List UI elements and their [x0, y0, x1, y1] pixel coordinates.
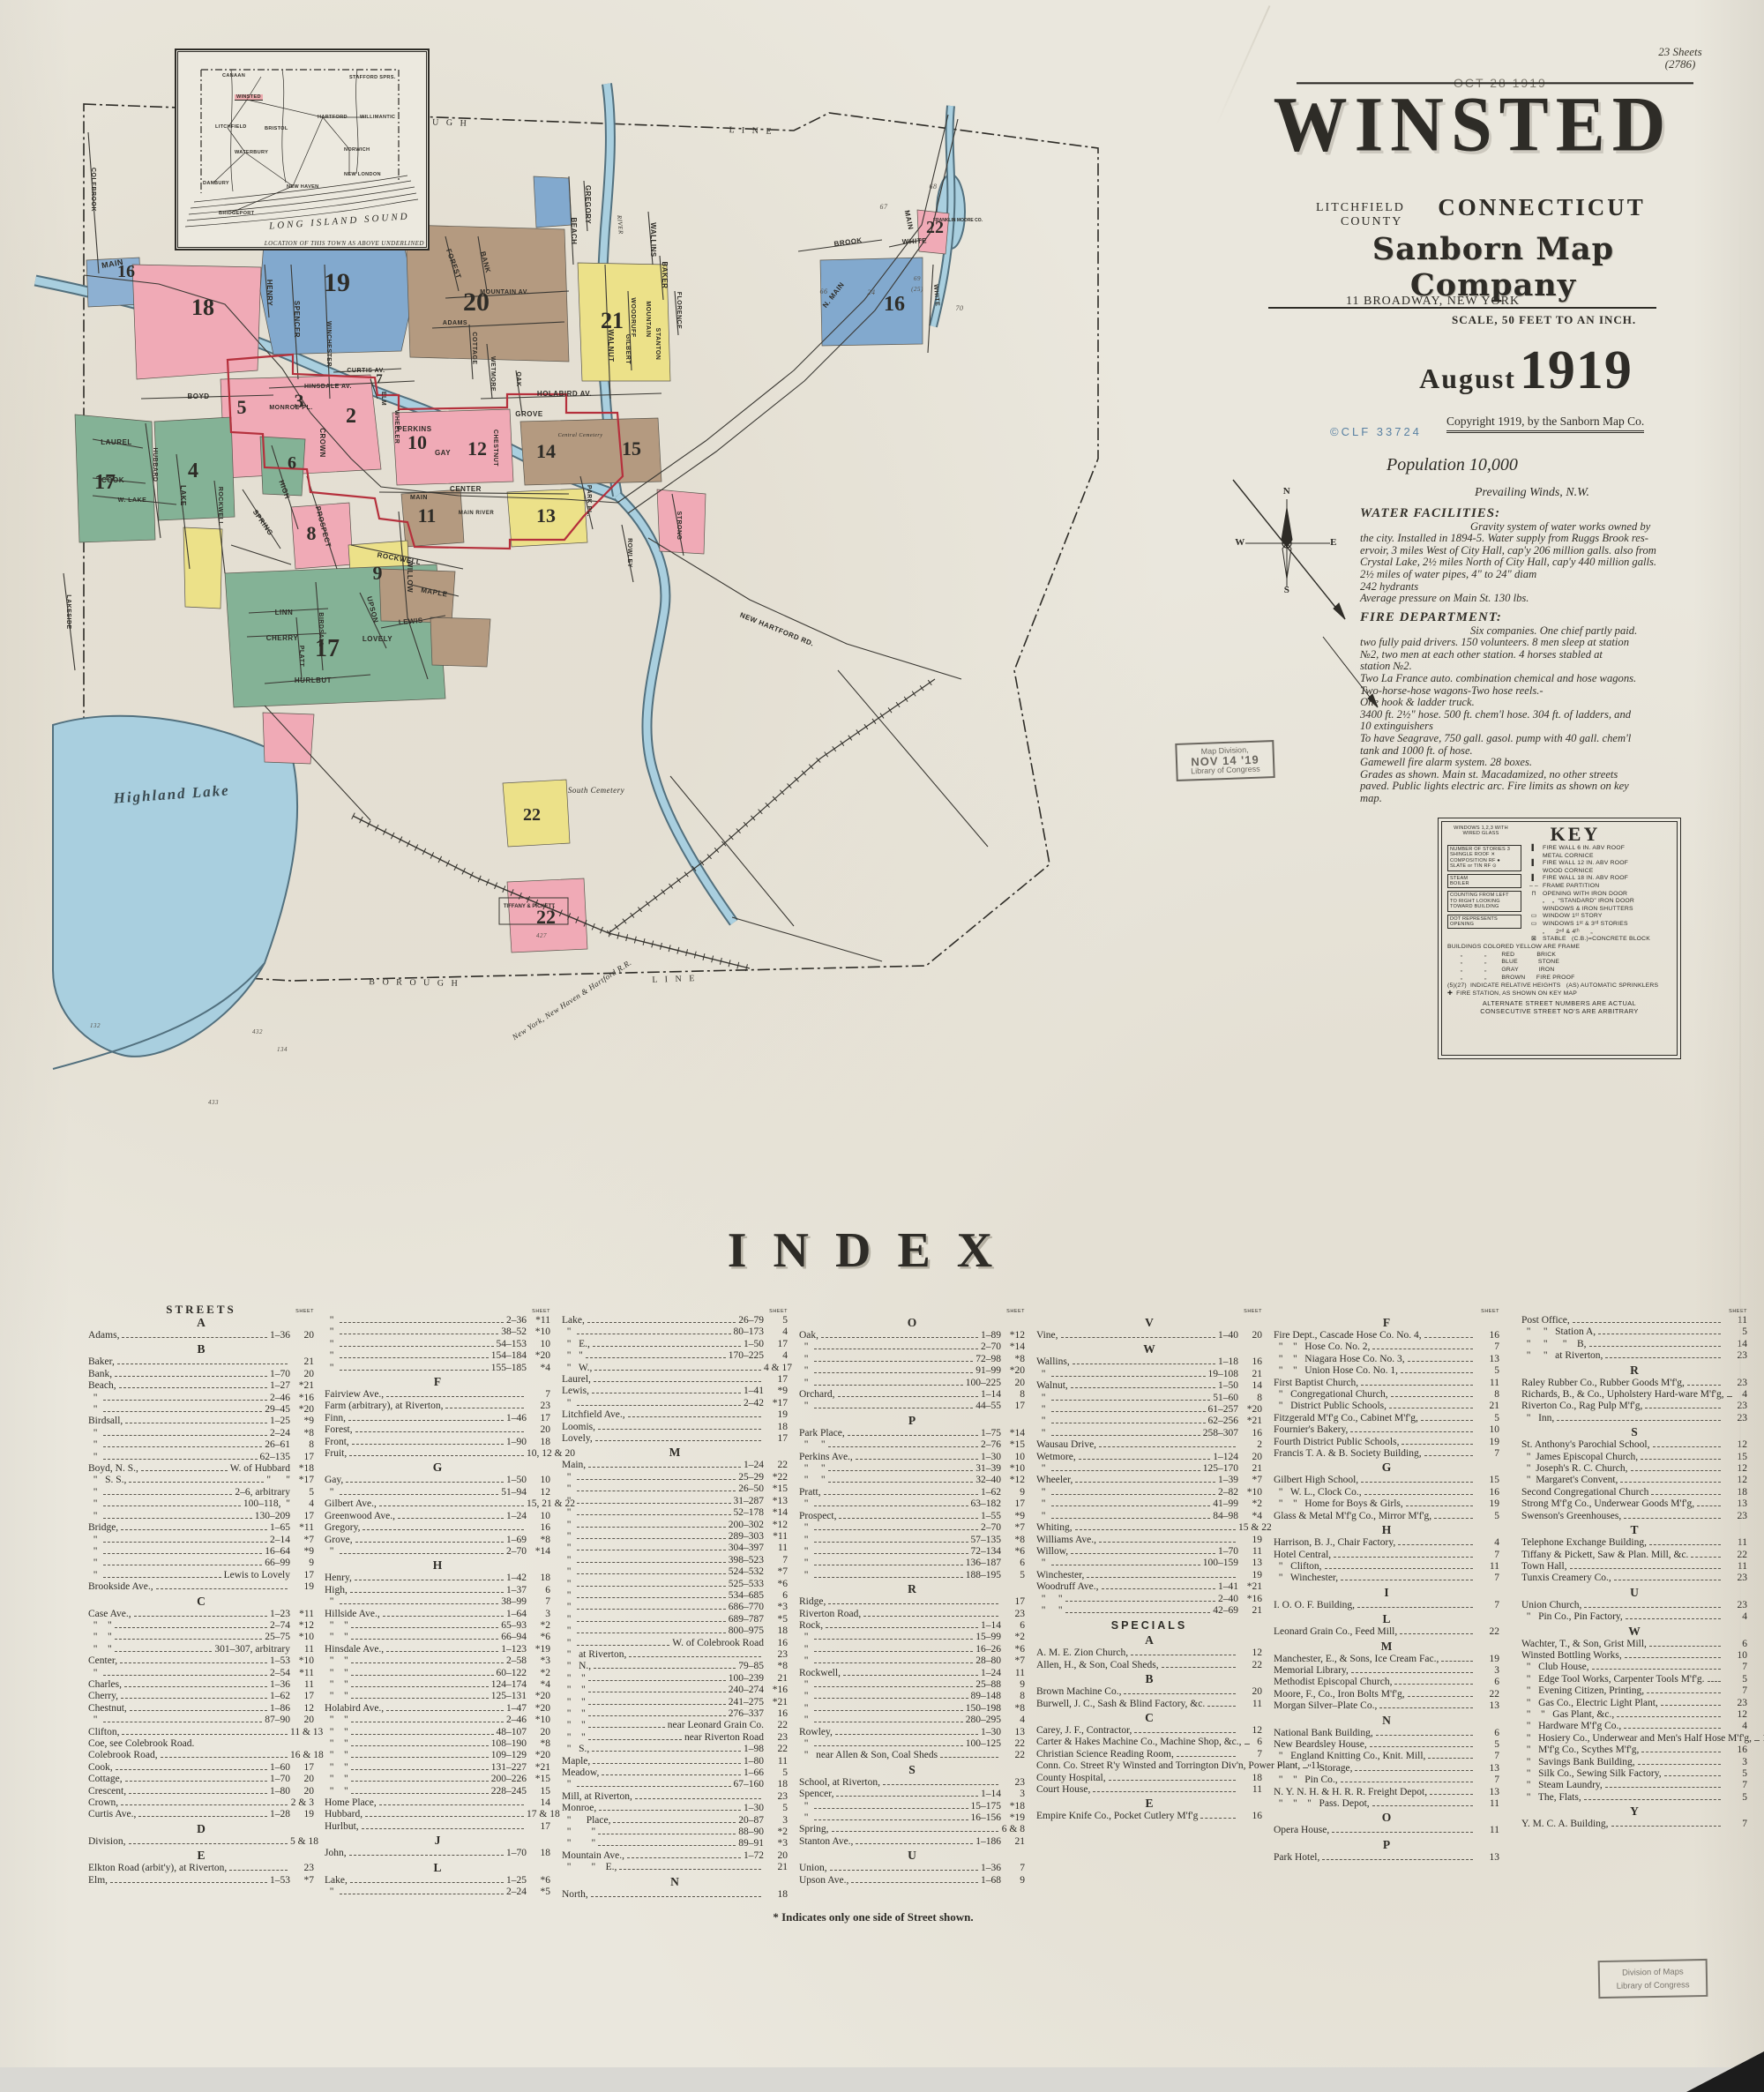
- index-entry: " "240–274*16: [562, 1685, 788, 1696]
- index-entry: Mountain Ave.,1–7220: [562, 1850, 788, 1862]
- index-entry: "89–1488: [799, 1691, 1025, 1702]
- index-entry: " "2–40*16: [1036, 1594, 1262, 1605]
- map-label: S: [1284, 585, 1290, 595]
- index-entry: Fitzgerald M'f'g Co., Cabinet M'f'g,5: [1274, 1413, 1499, 1424]
- district-number: 14: [536, 440, 556, 462]
- index-entry: "2–24*8: [88, 1428, 314, 1439]
- map-label: 132: [90, 1022, 101, 1029]
- index-entry: "84–98*4: [1036, 1511, 1262, 1522]
- district-number: 21: [601, 308, 624, 333]
- index-letter: R: [799, 1582, 1025, 1595]
- index-entry: Rowley,1–3013: [799, 1727, 1025, 1738]
- index-entry: Colebrook Road,16 & 18: [88, 1750, 314, 1761]
- index-letter: J: [325, 1834, 550, 1847]
- index-entry: " "124–174*4: [325, 1679, 550, 1691]
- index-entry: Upson Ave.,1–689: [799, 1875, 1025, 1887]
- index-entry: " Congregational Church,8: [1274, 1389, 1499, 1401]
- index-entry: Carey, J. F., Contractor,12: [1036, 1725, 1262, 1737]
- index-entry: Adams,1–3620: [88, 1330, 314, 1341]
- index-entry: " Hardware M'f'g Co.,4: [1521, 1721, 1747, 1732]
- map-label: LAKESIDE: [65, 594, 71, 629]
- index-letter: C: [88, 1595, 314, 1608]
- specials-heading: SPECIALS: [1036, 1618, 1262, 1633]
- index-entry: Hubbard,17 & 18: [325, 1809, 550, 1820]
- index-entry: First Baptist Church,11: [1274, 1378, 1499, 1389]
- map-label: COLEBROOK: [90, 168, 96, 212]
- index-entry: Home Place,14: [325, 1797, 550, 1809]
- index-entry: "91–99*20: [799, 1365, 1025, 1377]
- map-label: OAK: [515, 371, 521, 386]
- map-label: LINN: [275, 609, 294, 616]
- index-letter: N: [1274, 1714, 1499, 1727]
- map-label: L I N E: [652, 974, 697, 985]
- index-entry: "66–999: [88, 1558, 314, 1569]
- map-label: PARK PL.: [586, 485, 592, 517]
- index-entry: Park Place,1–75*14: [799, 1428, 1025, 1439]
- index-entry: " James Episcopal Church,15: [1521, 1452, 1747, 1463]
- key-row: ▌FIRE WALL 6 IN. ABV ROOF: [1525, 845, 1671, 853]
- index-entry: Raley Rubber Co., Rubber Goods M'f'g,23: [1521, 1378, 1747, 1389]
- index-entry: Burwell, J. C., Sash & Blind Factory, &c…: [1036, 1699, 1262, 1710]
- key-row: „ 2ⁿᵈ & 4ᵗʰ „: [1525, 929, 1671, 937]
- index-entry: "54–15310: [325, 1339, 550, 1350]
- key-line: (5)(27) INDICATE RELATIVE HEIGHTS (AS) A…: [1447, 982, 1671, 990]
- index-entry: "534–6856: [562, 1590, 788, 1602]
- index-entry: "524–532*7: [562, 1566, 788, 1578]
- note-line: map.: [1360, 793, 1708, 805]
- map-label: MONROE PL.: [269, 405, 312, 411]
- key-title: KEY: [1514, 826, 1636, 843]
- index-entry: " S. S.," "*17: [88, 1475, 314, 1486]
- note-line: Two La France auto. combination chemical…: [1360, 673, 1708, 685]
- map-label: 69: [914, 275, 921, 282]
- index-entry: " " " B,14: [1521, 1339, 1747, 1350]
- inset-town-label: NEW HAVEN: [287, 184, 318, 190]
- district-number: 19: [324, 268, 350, 297]
- index-entry: Gay,1–5010: [325, 1475, 550, 1486]
- index-entry: "62–13517: [88, 1452, 314, 1463]
- index-entry: " "2–76*15: [799, 1439, 1025, 1451]
- index-entry: " S.,1–9822: [562, 1744, 788, 1755]
- district-number: 4: [188, 459, 198, 482]
- index-entry: "28–80*7: [799, 1655, 1025, 1667]
- division-of-maps-stamp: Division of Maps Library of Congress: [1598, 1959, 1708, 1999]
- index-entry: Main,1–2422: [562, 1460, 788, 1471]
- key-diagram: DOT REPRESENTS OPENING: [1447, 915, 1521, 930]
- index-entry: "125–17021: [1036, 1463, 1262, 1475]
- map-label: CHERRY: [266, 634, 299, 642]
- note-line: Crystal Lake, 2½ miles North of City Hal…: [1360, 557, 1708, 569]
- index-entry: "2–70*14: [799, 1341, 1025, 1353]
- index-entry: "2–82*10: [1036, 1487, 1262, 1498]
- company-address: 11 BROADWAY, NEW YORK: [1346, 295, 1520, 309]
- index-entry: I. O. O. F. Building,7: [1274, 1600, 1499, 1611]
- index-entry: Charles,1–3611: [88, 1679, 314, 1691]
- district-number: 16: [884, 293, 905, 316]
- note-line: station №2.: [1360, 661, 1708, 673]
- index-entry: Allen, H., & Son, Coal Sheds,22: [1036, 1660, 1262, 1671]
- key-row: ▭WINDOWS 1ˢᵗ & 3ʳᵈ STORIES: [1525, 921, 1671, 929]
- index-entry: Christian Science Reading Room,7: [1036, 1749, 1262, 1760]
- index-letter: P: [799, 1414, 1025, 1427]
- index-entry: "100–118, "4: [88, 1498, 314, 1510]
- index-entry: "25–889: [799, 1679, 1025, 1691]
- index-entry: " " E.,21: [562, 1862, 788, 1873]
- index-entry: Woodruff Ave.,1–41*21: [1036, 1581, 1262, 1593]
- index-entry: Fournier's Bakery,10: [1274, 1424, 1499, 1436]
- index-entry: "2–36*11: [325, 1315, 550, 1326]
- map-label: GAY: [435, 449, 451, 457]
- map-label: CROWN: [318, 428, 326, 458]
- index-entry: " "228–24515: [325, 1786, 550, 1797]
- index-entry: Bridge,1–65*11: [88, 1522, 314, 1534]
- map-label: GREGORY: [584, 185, 592, 224]
- index-letter: S: [799, 1763, 1025, 1776]
- index-entry: " "241–275*21: [562, 1697, 788, 1708]
- index-letter: G: [1274, 1461, 1499, 1474]
- index-entry: " E.,1–5017: [562, 1339, 788, 1350]
- index-entry: Manchester, E., & Sons, Ice Cream Fac.,1…: [1274, 1654, 1499, 1665]
- index-entry: "Lewis to Lovely17: [88, 1570, 314, 1581]
- index-column: SHEET "2–36*11 "38–52*10 "54–15310 "154–…: [325, 1304, 550, 1898]
- key-note: ALTERNATE STREET NUMBERS ARE ACTUAL: [1447, 999, 1671, 1007]
- index-entry: Pratt,1–629: [799, 1487, 1025, 1498]
- index-entry: Glass & Metal M'f'g Co., Mirror M'f'g,5: [1274, 1511, 1499, 1522]
- index-entry: New Beardsley House,5: [1274, 1739, 1499, 1751]
- index-entry: " "131–227*21: [325, 1762, 550, 1774]
- streets-heading: STREETS: [88, 1304, 314, 1315]
- key-diagram: STEAM BOILER: [1447, 874, 1521, 889]
- map-label: LOVELY: [363, 635, 392, 643]
- inset-town-label: WILLIMANTIC: [360, 115, 395, 120]
- index-entry: "689–787*5: [562, 1614, 788, 1625]
- paper-edge: [0, 2067, 1764, 2092]
- index-entry: " "276–33716: [562, 1708, 788, 1720]
- map-label: LAKE: [179, 485, 187, 506]
- index-entry: Oak,1–89*12: [799, 1330, 1025, 1341]
- water-facilities-note: WATER FACILITIES: Gravity system of wate…: [1360, 508, 1708, 605]
- index-entry: Winchester,19: [1036, 1570, 1262, 1581]
- map-label: COTTAGE: [471, 332, 477, 364]
- index-entry: Wausau Drive,2: [1036, 1439, 1262, 1451]
- index-entry: "2–54*11: [88, 1668, 314, 1679]
- scale-note: SCALE, 50 FEET TO AN INCH.: [1452, 313, 1636, 327]
- index-entry: Swenson's Greenhouses,23: [1521, 1511, 1747, 1522]
- index-column: SHEETOOak,1–89*12 "2–70*14 "72–98*8 "91–…: [799, 1304, 1025, 1887]
- map-label: WOODRUFF: [630, 297, 636, 337]
- index-entry: "686–770*3: [562, 1602, 788, 1613]
- index-entry: " The, Flats,5: [1521, 1792, 1747, 1804]
- district-number: 17: [315, 635, 340, 662]
- index-entry: " W. L., Clock Co.,16: [1274, 1487, 1499, 1498]
- sheets-count-note: 23 Sheets(2786): [1623, 46, 1738, 71]
- index-entry: " Joseph's R. C. Church,12: [1521, 1463, 1747, 1475]
- index-entry: "800–97518: [562, 1625, 788, 1637]
- map-label: ROWLEY: [626, 538, 632, 568]
- index-entry: Hurlbut,17: [325, 1821, 550, 1833]
- index-entry: " "2–74*12: [88, 1620, 314, 1632]
- index-entry: " "2–58*3: [325, 1655, 550, 1667]
- index-entry: " Club House,7: [1521, 1662, 1747, 1673]
- paper-crease: [1739, 176, 1741, 1852]
- index-entry: Fairview Ave.,7: [325, 1389, 550, 1401]
- index-entry: Telephone Exchange Building,11: [1521, 1537, 1747, 1549]
- index-entry: " " Union Hose Co. No. 1,5: [1274, 1365, 1499, 1377]
- index-entry: Perkins Ave.,1–3010: [799, 1452, 1025, 1463]
- map-label: MAIN RIVER: [459, 511, 495, 516]
- inset-town-label: WATERBURY: [235, 150, 268, 155]
- index-entry: Hillside Ave.,1–643: [325, 1609, 550, 1620]
- index-entry: "80–1734: [562, 1326, 788, 1338]
- map-label: HUBBARD: [152, 448, 158, 482]
- index-entry: "16–64*9: [88, 1546, 314, 1558]
- note-line: Gamewell fire alarm system. 28 boxes.: [1360, 757, 1708, 769]
- index-letter: U: [1521, 1586, 1747, 1599]
- map-division-stamp: Map Division, NOV 14 '19 Library of Cong…: [1175, 740, 1274, 781]
- note-line: 2½ miles of water pipes, 4" to 24" diam: [1360, 569, 1708, 581]
- index-entry: "130–20917: [88, 1511, 314, 1522]
- index-entry: Brookside Ave.,19: [88, 1581, 314, 1593]
- inset-town-label: CANAAN: [222, 73, 245, 78]
- index-entry: "2–46*16: [88, 1393, 314, 1404]
- district-number: 9: [373, 562, 383, 584]
- index-letter: A: [1036, 1633, 1262, 1647]
- map-label: SPRING: [251, 508, 275, 537]
- key-line: „ „ GRAY IRON: [1447, 967, 1671, 975]
- key-line: „ „ BLUE STONE: [1447, 959, 1671, 967]
- index-entry: Mill, at Riverton,23: [562, 1791, 788, 1803]
- index-entry: " "301–307, arbitrary11: [88, 1644, 314, 1655]
- note-line: 3400 ft. 2½" hose. 500 ft. chem'l hose. …: [1360, 709, 1708, 721]
- index-letter: Y: [1521, 1804, 1747, 1818]
- map-label: CENTER: [450, 485, 482, 493]
- index-entry: "15–99*2: [799, 1632, 1025, 1643]
- map-label: W. LAKE: [118, 497, 147, 504]
- index-entry: " N.,79–85*8: [562, 1661, 788, 1672]
- index-letter: W: [1036, 1342, 1262, 1356]
- index-entry: Wallins,1–1816: [1036, 1356, 1262, 1368]
- index-entry: "51–608: [1036, 1393, 1262, 1404]
- index-entry: "258–30716: [1036, 1428, 1262, 1439]
- index-letter: E: [1036, 1797, 1262, 1810]
- index-entry: Division,5 & 18: [88, 1836, 314, 1848]
- note-line: tank and 1000 ft. of hose.: [1360, 745, 1708, 758]
- index-entry: " " Niagara Hose Co. No. 3,13: [1274, 1354, 1499, 1365]
- note-line: paved. Public lights electric arc. Fire …: [1360, 781, 1708, 793]
- index-entry: "2–42*17: [562, 1398, 788, 1409]
- index-entry: "525–533*6: [562, 1579, 788, 1590]
- index-entry: Spring,6 & 8: [799, 1824, 1025, 1835]
- district-number: 8: [307, 522, 317, 544]
- inset-town-label: BRISTOL: [265, 126, 288, 131]
- district-number: 20: [463, 288, 490, 317]
- index-letter: C: [1036, 1711, 1262, 1724]
- index-entry: "155–185*4: [325, 1363, 550, 1374]
- map-label: WALLINS: [649, 222, 657, 258]
- index-letter: H: [1274, 1523, 1499, 1536]
- index-entry: Meadow,1–665: [562, 1767, 788, 1779]
- index-letter: R: [1521, 1364, 1747, 1377]
- index-entry: Spencer,1–143: [799, 1789, 1025, 1800]
- district-number: 17: [94, 471, 116, 494]
- index-entry: "26–50*15: [562, 1483, 788, 1495]
- index-entry: Gregory,16: [325, 1522, 550, 1534]
- index-entry: Holabird Ave.,1–47*20: [325, 1703, 550, 1715]
- map-label: FLORENCE: [676, 292, 682, 330]
- district-number: 18: [191, 295, 214, 320]
- map-label: HENRY: [265, 280, 273, 306]
- index-entry: " near Allen & Son, Coal Sheds22: [799, 1750, 1025, 1761]
- map-label: BEACH: [570, 218, 578, 245]
- prevailing-winds-note: Prevailing Winds, N.W.: [1475, 486, 1589, 500]
- index-letter: U: [799, 1849, 1025, 1862]
- key-row: ▭WINDOW 1ˢᵗ STORY: [1525, 913, 1671, 921]
- index-entry: Boyd, N. S.,W. of Hubbard*18: [88, 1463, 314, 1475]
- index-entry: Empire Knife Co., Pocket Cutlery M'f'g16: [1036, 1811, 1262, 1822]
- index-entry: "41–99*2: [1036, 1498, 1262, 1510]
- inset-town-label: STAFFORD SPRS.: [349, 75, 396, 80]
- index-entry: National Bank Building,6: [1274, 1728, 1499, 1739]
- index-entry: St. Anthony's Parochial School,12: [1521, 1439, 1747, 1451]
- index-entry: " "42–6921: [1036, 1605, 1262, 1617]
- map-label: BROOK: [833, 236, 863, 248]
- index-entry: John,1–7018: [325, 1848, 550, 1859]
- index-entry: " "60–122*2: [325, 1668, 550, 1679]
- key-line: „ „ BROWN FIRE PROOF: [1447, 975, 1671, 982]
- index-entry: County Hospital,18: [1036, 1773, 1262, 1784]
- index-entry: Cherry,1–6217: [88, 1691, 314, 1702]
- index-letter: D: [88, 1822, 314, 1835]
- index-letter: E: [88, 1849, 314, 1862]
- index-entry: "2–14*7: [88, 1535, 314, 1546]
- index-entry: " Evening Citizen, Printing,7: [1521, 1685, 1747, 1697]
- index-entry: " "200–226*15: [325, 1774, 550, 1785]
- index-entry: "16–26*6: [799, 1644, 1025, 1655]
- map-label: W: [1235, 537, 1245, 548]
- index-entry: " "25–75*10: [88, 1632, 314, 1643]
- index-entry: Rock,1–146: [799, 1620, 1025, 1632]
- key-row: – –FRAME PARTITION: [1525, 883, 1671, 891]
- index-entry: Greenwood Ave.,1–2410: [325, 1511, 550, 1522]
- sanborn-map-sheet: MAINLOOMISCOLEBROOKHENRYSPENCERWINCHESTE…: [0, 0, 1764, 2092]
- index-entry: "57–135*8: [799, 1535, 1025, 1546]
- index-entry: Elm,1–53*7: [88, 1875, 314, 1887]
- index-entry: Moore, F., Co., Iron Bolts M'f'g,22: [1274, 1689, 1499, 1700]
- index-entry: Gilbert High School,15: [1274, 1475, 1499, 1486]
- index-entry: Clifton,11 & 13: [88, 1727, 314, 1738]
- index-entry: Methodist Episcopal Church,6: [1274, 1677, 1499, 1688]
- map-label: 433: [208, 1099, 219, 1106]
- index-entry: " " Home for Boys & Girls,19: [1274, 1498, 1499, 1510]
- key-diagram: COUNTING FROM LEFT TO RIGHT LOOKING TOWA…: [1447, 891, 1521, 911]
- index-entry: Forest,20: [325, 1424, 550, 1436]
- index-entry: Wheeler,1–39*7: [1036, 1475, 1262, 1486]
- note-line: 242 hydrants: [1360, 581, 1708, 594]
- index-entry: "100–12522: [799, 1738, 1025, 1750]
- index-entry: "19–10821: [1036, 1369, 1262, 1380]
- inset-town-label: WINSTED: [235, 94, 263, 101]
- index-letter: F: [325, 1375, 550, 1388]
- map-label: BAKER: [661, 262, 669, 289]
- index-letter: N: [562, 1875, 788, 1888]
- index-entry: " " Pin Co.,7: [1274, 1774, 1499, 1786]
- index-entry: "67–16018: [562, 1779, 788, 1790]
- map-label: MAIN: [903, 210, 915, 231]
- index-entry: Lewis,1–41*9: [562, 1386, 788, 1397]
- index-entry: Rockwell,1–2411: [799, 1668, 1025, 1679]
- key-row: WOOD CORNICE: [1525, 868, 1671, 876]
- map-label: SPENCER: [293, 301, 301, 338]
- index-entry: " " " Pass. Depot,11: [1274, 1798, 1499, 1810]
- index-entry: " " Gas Plant, &c.,12: [1521, 1709, 1747, 1721]
- index-entry: " "108–190*8: [325, 1738, 550, 1750]
- index-entry: Y. M. C. A. Building,7: [1521, 1819, 1747, 1830]
- index-entry: Grove,1–69*8: [325, 1535, 550, 1546]
- index-entry: "188–1955: [799, 1570, 1025, 1581]
- note-line: Two-horse-hose wagons-Two hose reels.-: [1360, 685, 1708, 698]
- note-line: two fully paid drivers. 150 volunteers. …: [1360, 637, 1708, 649]
- index-entry: Union Church,23: [1521, 1600, 1747, 1611]
- index-entry: "72–134*6: [799, 1546, 1025, 1558]
- index-entry: Finn,1–4617: [325, 1413, 550, 1424]
- index-entry: " Clifton,11: [1274, 1561, 1499, 1573]
- map-label: New York, New Haven & Hartford R.R.: [510, 958, 633, 1042]
- index-entry: Laurel,17: [562, 1374, 788, 1386]
- map-label: NEW HARTFORD RD.: [739, 611, 816, 648]
- index-entry: Center,1–53*10: [88, 1655, 314, 1667]
- map-label: 66: [820, 288, 828, 295]
- index-entry: Winsted Bottling Works,10: [1521, 1650, 1747, 1662]
- map-label: 134: [277, 1046, 288, 1053]
- district-number: 2: [346, 405, 356, 428]
- key-row: WINDOWS & IRON SHUTTERS: [1525, 906, 1671, 914]
- map-label: PLATT: [298, 646, 304, 668]
- map-label: GROVE: [515, 410, 543, 418]
- inset-town-label: BRIDGEPORT: [219, 211, 254, 216]
- key-row: ▌FIRE WALL 12 IN. ABV ROOF: [1525, 860, 1671, 868]
- index-entry: Walnut,1–5014: [1036, 1380, 1262, 1392]
- index-column: STREETSSHEETAAdams,1–3620BBaker,21Bank,1…: [88, 1304, 314, 1887]
- index-entry: Crescent,1–8020: [88, 1786, 314, 1797]
- index-letter: A: [88, 1316, 314, 1329]
- index-entry: " Silk Co., Sewing Silk Factory,5: [1521, 1768, 1747, 1780]
- note-line: ervoir, 3 miles West of City Hall, cap'y…: [1360, 545, 1708, 557]
- key-line: ✚ FIRE STATION, AS SHOWN ON KEY MAP: [1447, 990, 1671, 998]
- index-entry: Ridge,17: [799, 1596, 1025, 1608]
- district-number: 22: [926, 218, 944, 237]
- index-entry: Tiffany & Pickett, Saw & Plan. Mill, &c.…: [1521, 1550, 1747, 1561]
- index-entry: " Inn,23: [1521, 1413, 1747, 1424]
- index-entry: Post Office,11: [1521, 1315, 1747, 1326]
- map-label: WILLOW: [406, 561, 414, 593]
- index-entry: Hotel Central,7: [1274, 1550, 1499, 1561]
- index-entry: " "89–91*3: [562, 1838, 788, 1849]
- note-line: Six companies. One chief partly paid.: [1360, 625, 1708, 638]
- index-entry: "62–256*21: [1036, 1416, 1262, 1427]
- index-entry: "29–45*20: [88, 1404, 314, 1416]
- index-entry: "150–198*8: [799, 1703, 1025, 1715]
- index-entry: " " " Storage,13: [1274, 1763, 1499, 1774]
- index-entry: Tunxis Creamery Co.,23: [1521, 1573, 1747, 1584]
- index-entry: " "48–10720: [325, 1727, 550, 1738]
- index-letter: S: [1521, 1425, 1747, 1438]
- index-entry: Gilbert Ave.,15, 21 & 22: [325, 1498, 550, 1510]
- map-label: 432: [252, 1028, 263, 1035]
- population-note: Population 10,000: [1387, 455, 1518, 475]
- index-entry: "63–18217: [799, 1498, 1025, 1510]
- index-letter: L: [325, 1861, 550, 1874]
- index-entry: " Margaret's Convent,12: [1521, 1475, 1747, 1486]
